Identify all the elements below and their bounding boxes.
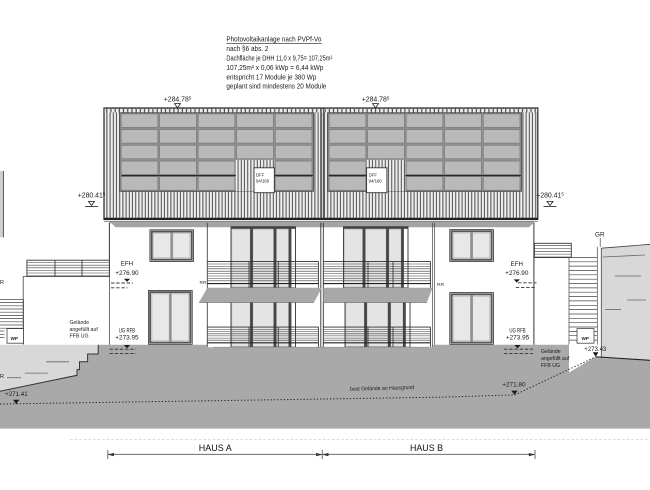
svg-text:geplant sind mindestens 20 Mod: geplant sind mindestens 20 Module xyxy=(226,82,326,91)
svg-text:+273.95: +273.95 xyxy=(115,335,138,342)
svg-text:+273.95: +273.95 xyxy=(506,335,529,342)
svg-text:UG RFB: UG RFB xyxy=(509,327,526,334)
svg-text:UG RFB: UG RFB xyxy=(119,327,136,334)
svg-text:nach §6 abs. 2: nach §6 abs. 2 xyxy=(226,44,268,53)
svg-text:DFF: DFF xyxy=(369,172,378,177)
svg-text:+284.785: +284.785 xyxy=(164,96,192,104)
svg-text:107,25m² x 0,06 kWp = 6,44 kWp: 107,25m² x 0,06 kWp = 6,44 kWp xyxy=(226,63,323,72)
svg-text:GR: GR xyxy=(595,232,605,239)
svg-text:angefüllt auf: angefüllt auf xyxy=(541,356,570,362)
svg-text:EFH: EFH xyxy=(121,261,133,268)
svg-text:+284.785: +284.785 xyxy=(362,96,390,104)
svg-text:HAUS A: HAUS A xyxy=(199,443,232,453)
svg-text:Gelände: Gelände xyxy=(541,349,561,355)
svg-text:EFH: EFH xyxy=(511,261,523,268)
svg-text:+273.43: +273.43 xyxy=(584,346,606,353)
svg-text:RR: RR xyxy=(437,282,445,288)
svg-text:Gelände: Gelände xyxy=(70,320,90,326)
svg-text:Photovoltaikanlage nach PVPf-V: Photovoltaikanlage nach PVPf-Vo xyxy=(226,34,321,43)
svg-text:angefüllt auf: angefüllt auf xyxy=(70,327,99,333)
svg-text:+276.90: +276.90 xyxy=(505,270,528,277)
svg-text:+280.415: +280.415 xyxy=(78,192,106,200)
svg-text:WP: WP xyxy=(582,336,589,341)
svg-text:+276.90: +276.90 xyxy=(115,270,138,277)
svg-text:DFF: DFF xyxy=(256,172,265,177)
svg-text:HAUS B: HAUS B xyxy=(410,443,443,453)
svg-text:FFB UG: FFB UG xyxy=(70,334,89,340)
svg-text:entspricht 17 Module je 380 Wp: entspricht 17 Module je 380 Wp xyxy=(226,72,316,81)
svg-text:WP: WP xyxy=(11,336,18,341)
svg-text:FFB UG: FFB UG xyxy=(541,363,560,369)
svg-text:R: R xyxy=(0,280,4,286)
svg-text:Dachfläche je DHH 11,0 x 9,75: Dachfläche je DHH 11,0 x 9,75= 107,25m² xyxy=(226,54,332,63)
svg-text:94/160: 94/160 xyxy=(369,179,383,184)
svg-text:+271.80: +271.80 xyxy=(502,381,525,388)
svg-text:+280.415: +280.415 xyxy=(536,192,564,200)
svg-text:+271.41: +271.41 xyxy=(5,391,28,398)
svg-text:R: R xyxy=(0,374,4,380)
svg-text:RR: RR xyxy=(200,280,208,286)
svg-text:94/160: 94/160 xyxy=(256,179,270,184)
